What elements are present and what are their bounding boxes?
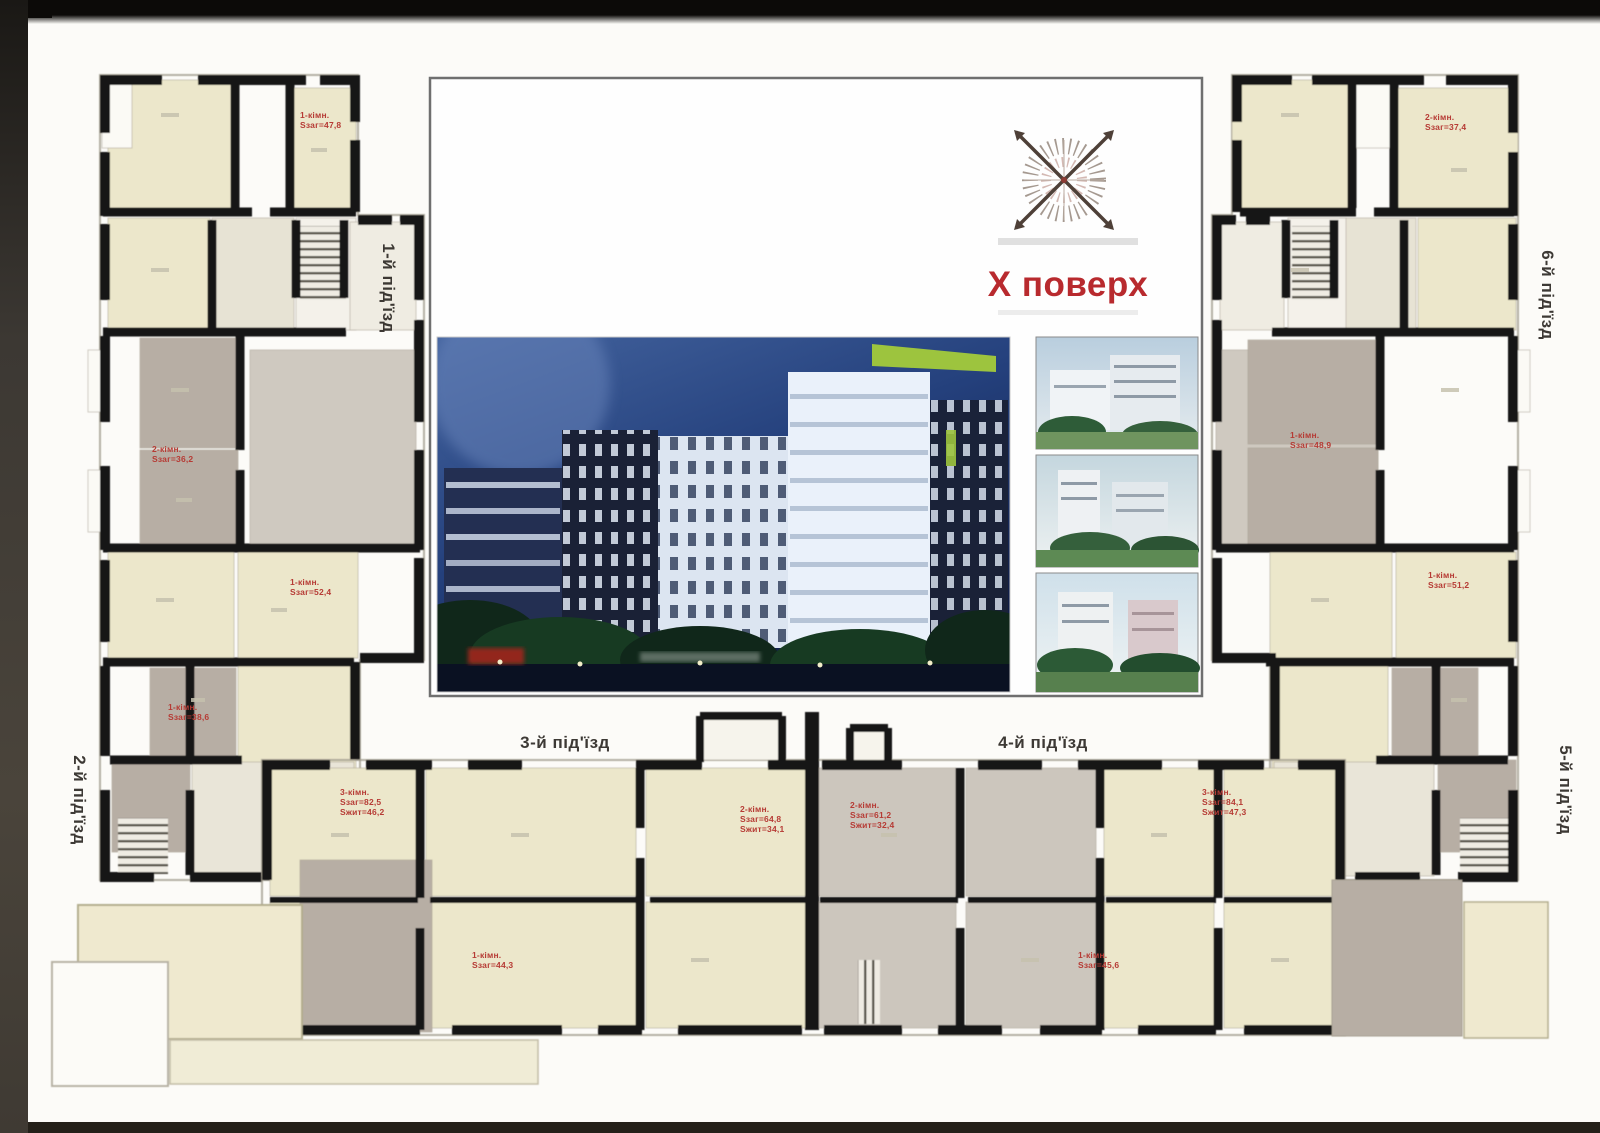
svg-text:Sзаг=64,8: Sзаг=64,8 (740, 814, 781, 824)
svg-text:3-кімн.: 3-кімн. (1202, 787, 1231, 797)
thumbnail-photo-1 (1036, 337, 1198, 449)
entrance-label-2: 2-й під'їзд (70, 755, 89, 845)
compass-rose-icon (1014, 130, 1114, 230)
svg-text:Sжит=34,1: Sжит=34,1 (740, 824, 784, 834)
svg-text:2-кімн.: 2-кімн. (152, 444, 181, 454)
svg-text:1-кімн.: 1-кімн. (168, 702, 197, 712)
thumbnail-photo-3 (1036, 573, 1200, 692)
svg-text:2-кімн.: 2-кімн. (850, 800, 879, 810)
terrace-left-white (52, 962, 168, 1086)
main-building-photo (400, 295, 1045, 701)
svg-text:1-кімн.: 1-кімн. (1290, 430, 1319, 440)
info-panel: Х поверх (400, 78, 1202, 701)
svg-text:Sзаг=52,4: Sзаг=52,4 (290, 587, 331, 597)
svg-text:Sзаг=45,6: Sзаг=45,6 (1078, 960, 1119, 970)
stairs-left-upper (300, 226, 346, 300)
stairs-left-lower (118, 818, 168, 874)
svg-text:Sзаг=82,5: Sзаг=82,5 (340, 797, 381, 807)
svg-text:Sзаг=36,2: Sзаг=36,2 (152, 454, 193, 464)
stairs-bottom-center (858, 960, 880, 1024)
floorplan-page: 1-й під'їзд 2-й під'їзд 3-й під'їзд 4-й … (0, 0, 1600, 1133)
terrace-right (1464, 902, 1548, 1038)
svg-text:2-кімн.: 2-кімн. (740, 804, 769, 814)
terrace-right-gray (1332, 880, 1462, 1036)
title-rule-bottom (998, 310, 1138, 315)
title-rule-top (998, 238, 1138, 245)
svg-text:1-кімн.: 1-кімн. (1428, 570, 1457, 580)
svg-text:Sзаг=51,2: Sзаг=51,2 (1428, 580, 1469, 590)
svg-text:Sзаг=47,8: Sзаг=47,8 (300, 120, 341, 130)
entrance-label-5: 5-й під'їзд (1556, 745, 1575, 835)
entrance-label-6: 6-й під'їзд (1538, 250, 1557, 340)
svg-text:1-кімн.: 1-кімн. (472, 950, 501, 960)
svg-text:2-кімн.: 2-кімн. (1425, 112, 1454, 122)
entrance-label-4: 4-й під'їзд (998, 733, 1088, 752)
svg-text:3-кімн.: 3-кімн. (340, 787, 369, 797)
entrance-label-3: 3-й під'їзд (520, 733, 610, 752)
floor-plan-canvas: 1-й під'їзд 2-й під'їзд 3-й під'їзд 4-й … (0, 0, 1600, 1133)
svg-text:1-кімн.: 1-кімн. (1078, 950, 1107, 960)
entrance-label-1: 1-й під'їзд (379, 243, 398, 333)
svg-text:Sзаг=44,3: Sзаг=44,3 (472, 960, 513, 970)
svg-text:1-кімн.: 1-кімн. (290, 577, 319, 587)
svg-text:Sзаг=84,1: Sзаг=84,1 (1202, 797, 1243, 807)
svg-text:Sжит=32,4: Sжит=32,4 (850, 820, 894, 830)
svg-text:Sжит=47,3: Sжит=47,3 (1202, 807, 1246, 817)
svg-text:Sзаг=38,6: Sзаг=38,6 (168, 712, 209, 722)
svg-text:Sзаг=48,9: Sзаг=48,9 (1290, 440, 1331, 450)
svg-text:Sзаг=37,4: Sзаг=37,4 (1425, 122, 1466, 132)
thumbnail-photo-2 (1036, 455, 1199, 567)
bottom-bar (28, 1122, 1600, 1133)
svg-text:Sзаг=61,2: Sзаг=61,2 (850, 810, 891, 820)
stairs-right-lower (1460, 818, 1510, 874)
svg-text:1-кімн.: 1-кімн. (300, 110, 329, 120)
left-strip (0, 0, 28, 1133)
bottom-wing-plan (262, 712, 1345, 1035)
svg-text:Sжит=46,2: Sжит=46,2 (340, 807, 384, 817)
top-bar (0, 0, 1600, 15)
floor-title: Х поверх (988, 265, 1149, 304)
terrace-bottom-strip (170, 1040, 538, 1084)
